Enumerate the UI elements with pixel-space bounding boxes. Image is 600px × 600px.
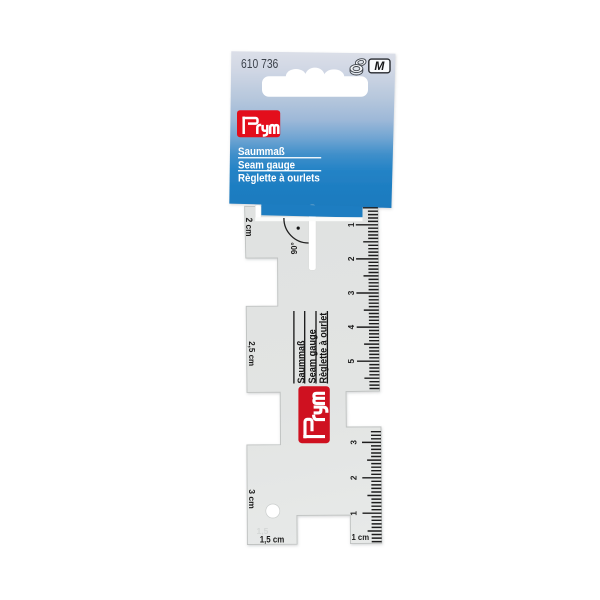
svg-text:1: 1 <box>347 222 356 227</box>
svg-text:Seam gauge: Seam gauge <box>307 329 318 384</box>
svg-text:3: 3 <box>347 290 356 295</box>
svg-text:3 cm: 3 cm <box>247 489 257 509</box>
svg-text:610 736: 610 736 <box>241 57 278 71</box>
svg-text:Règlette à ourlet: Règlette à ourlet <box>318 312 329 383</box>
svg-text:2,5 cm: 2,5 cm <box>247 341 257 366</box>
svg-text:4: 4 <box>347 324 356 329</box>
svg-text:90°: 90° <box>290 242 299 254</box>
svg-text:1,5 cm: 1,5 cm <box>260 534 285 544</box>
svg-text:M: M <box>374 59 385 73</box>
svg-text:2: 2 <box>349 475 358 480</box>
svg-text:2 cm: 2 cm <box>244 218 254 237</box>
svg-text:Seam gauge: Seam gauge <box>238 159 295 171</box>
svg-text:1 cm: 1 cm <box>352 532 370 542</box>
svg-text:Saummaß: Saummaß <box>296 341 307 384</box>
svg-text:3: 3 <box>349 440 358 445</box>
svg-text:Règlette à ourlets: Règlette à ourlets <box>238 172 320 184</box>
svg-text:Saummaß: Saummaß <box>238 146 285 158</box>
svg-text:1: 1 <box>349 511 358 516</box>
svg-text:5: 5 <box>347 358 356 363</box>
svg-text:2: 2 <box>347 256 356 261</box>
